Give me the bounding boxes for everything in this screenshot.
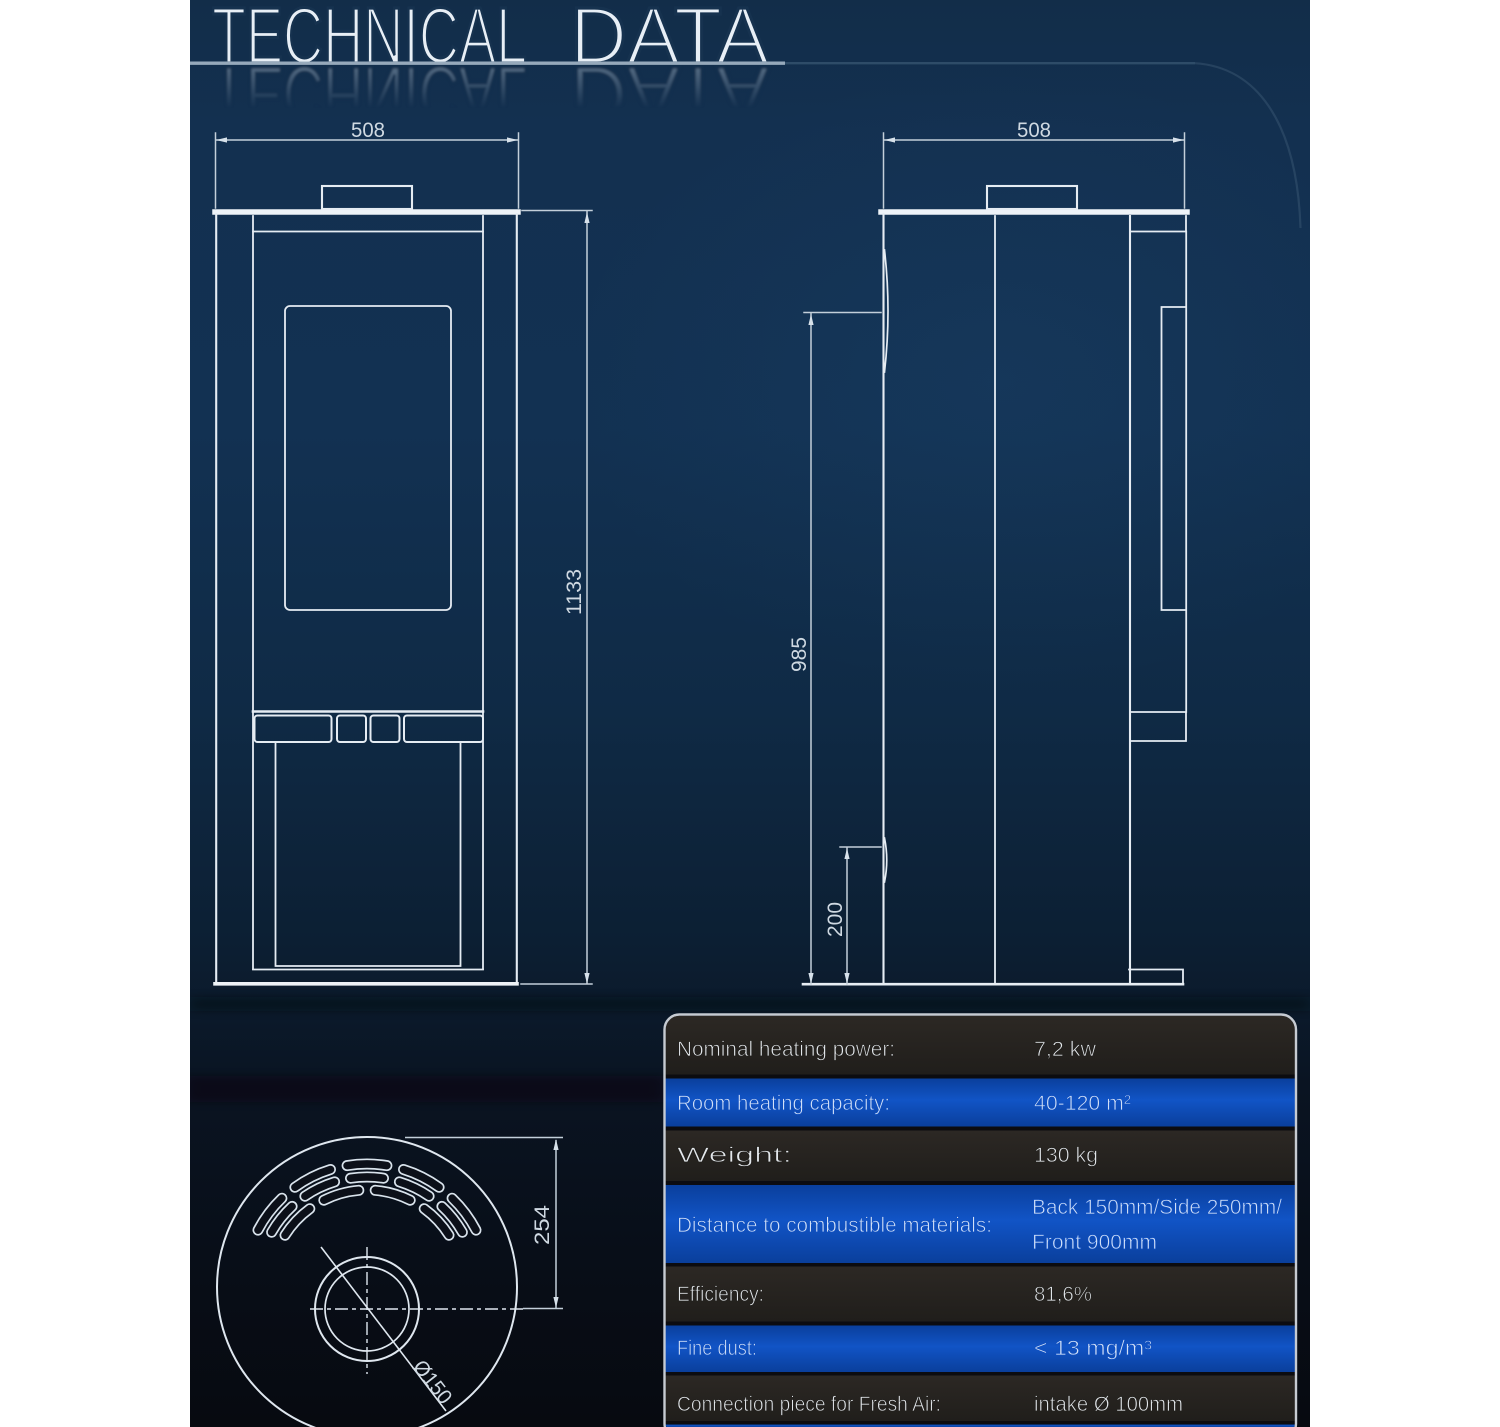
svg-text:intake Ø 100mm: intake Ø 100mm [1034,1393,1183,1416]
svg-text:Nominal heating power:: Nominal heating power: [677,1038,895,1061]
svg-text:254: 254 [531,1205,554,1245]
svg-text:Front 900mm: Front 900mm [1032,1231,1157,1254]
svg-text:Distance to combustible materi: Distance to combustible materials: [677,1214,992,1237]
svg-text:130 kg: 130 kg [1034,1144,1098,1167]
svg-text:< 13 mg/m³: < 13 mg/m³ [1034,1337,1152,1360]
svg-text:40-120 m²: 40-120 m² [1034,1092,1131,1115]
svg-text:508: 508 [351,119,385,142]
svg-text:1133: 1133 [563,569,586,615]
svg-text:200: 200 [824,902,847,937]
svg-text:Connection piece for Fresh Air: Connection piece for Fresh Air: [677,1393,941,1416]
svg-text:81,6%: 81,6% [1034,1283,1092,1306]
svg-text:Efficiency:: Efficiency: [677,1283,764,1306]
svg-text:Fine dust:: Fine dust: [677,1337,757,1360]
svg-text:985: 985 [788,637,811,672]
svg-text:508: 508 [1017,119,1051,142]
svg-text:7,2 kw: 7,2 kw [1034,1038,1097,1061]
svg-text:Weight:: Weight: [677,1144,792,1167]
svg-text:Back 150mm/Side 250mm/: Back 150mm/Side 250mm/ [1032,1196,1282,1219]
svg-text:Room heating capacity:: Room heating capacity: [677,1092,890,1115]
